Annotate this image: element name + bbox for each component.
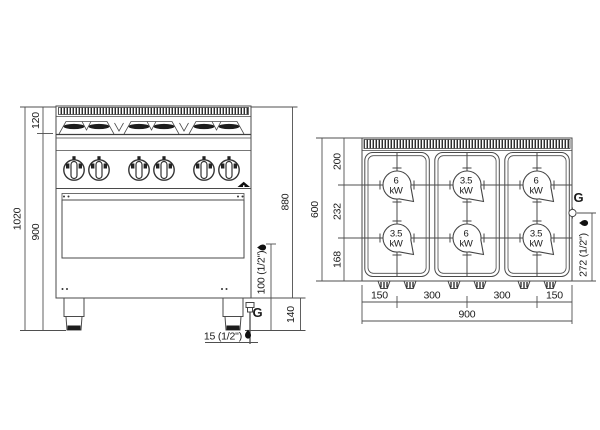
dim-300-left-label: 300 [424, 290, 441, 302]
legs [64, 298, 243, 330]
control-knob [129, 156, 149, 180]
burner-cap-profile [194, 124, 215, 129]
front-view-dimensions: 1020 120 900 880 100 (1/2") 140 G 15 (1/… [11, 107, 305, 343]
burner-3-unit-label: kW [529, 186, 542, 197]
control-knob [64, 156, 84, 180]
gas-flame-icon [579, 220, 588, 226]
control-knob [194, 156, 214, 180]
front-gas-g-label: G [253, 305, 263, 320]
burner-cap-profile [64, 124, 85, 129]
gas-flame-icon [257, 245, 266, 251]
dim-200-label: 200 [331, 153, 343, 170]
burner-6-unit-label: kW [529, 239, 542, 250]
feet-tabs [378, 281, 556, 289]
control-knob [89, 156, 109, 180]
dim-272-label: 272 (1/2") [577, 233, 589, 277]
dim-232-label: 232 [331, 203, 343, 220]
dim-1020-label: 1020 [11, 207, 23, 230]
oven-door-panel [62, 200, 244, 258]
top-view-dimensions: 600 200 232 168 150 300 300 150 900 G 27… [309, 138, 596, 324]
back-edge-hatch-strip [364, 140, 570, 149]
gas-range-technical-drawing: 1020 120 900 880 100 (1/2") 140 G 15 (1/… [0, 0, 600, 430]
burner-cap-profile [154, 124, 175, 129]
burner-cap-profile [89, 124, 110, 129]
control-knobs [64, 156, 239, 180]
oven-handle [62, 194, 244, 201]
control-knob [219, 156, 239, 180]
top-view: 6 kW 3.5 kW 6 kW 3.5 kW 6 kW 3.5 kW [362, 138, 576, 289]
leg [223, 298, 243, 317]
dim-900-label: 900 [30, 223, 42, 240]
dim-150-left-label: 150 [371, 290, 388, 302]
dim-600-label: 600 [309, 201, 321, 218]
dim-150-right-label: 150 [546, 290, 563, 302]
burner-5-unit-label: kW [459, 239, 472, 250]
dim-900-width-label: 900 [459, 309, 476, 321]
burner-profiles-front [59, 122, 244, 135]
burner-1-unit-label: kW [389, 186, 402, 197]
front-view [56, 106, 254, 344]
dim-140-label: 140 [285, 306, 297, 323]
backsplash-hatch-strip [59, 108, 249, 115]
technical-drawing-page: 1020 120 900 880 100 (1/2") 140 G 15 (1/… [0, 0, 600, 430]
burner-4-unit-label: kW [389, 239, 402, 250]
burner-2-unit-label: kW [459, 186, 472, 197]
dim-15-label: 15 (1/2") [204, 331, 242, 343]
top-gas-g-label: G [574, 190, 584, 205]
dim-880-label: 880 [279, 193, 291, 210]
burner-cap-profile [219, 124, 240, 129]
control-knob [154, 156, 174, 180]
burner-cap-profile [129, 124, 150, 129]
dim-120-label: 120 [30, 112, 42, 129]
leg [64, 298, 84, 317]
gas-connection-top [569, 208, 576, 219]
gas-fitting [569, 209, 576, 216]
dim-300-right-label: 300 [494, 290, 511, 302]
dim-100-label: 100 (1/2") [255, 251, 267, 295]
dim-168-label: 168 [331, 251, 343, 268]
oven-door [62, 194, 245, 291]
brand-logo-triangle [238, 182, 251, 187]
